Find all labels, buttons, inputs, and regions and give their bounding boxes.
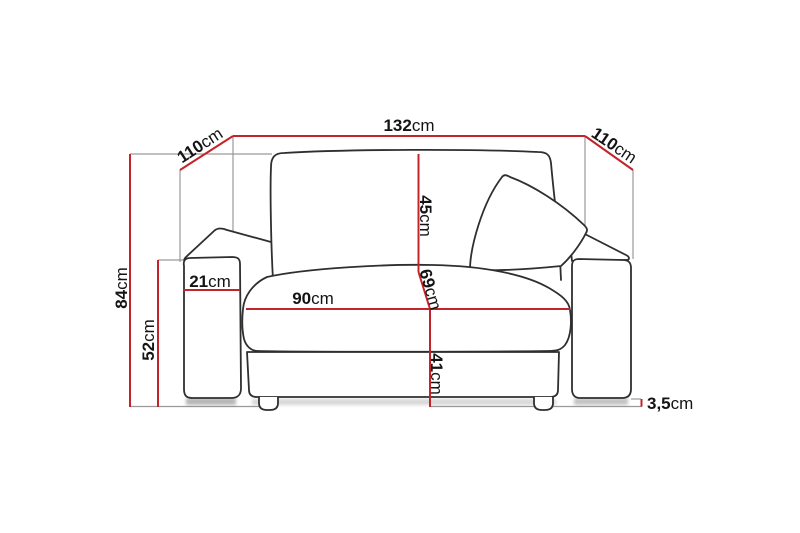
shadow-right-armrest [574, 398, 628, 405]
armrest-height-unit: cm [139, 319, 158, 342]
seat-width-value: 90 [292, 289, 311, 308]
armrest-height-value: 52 [139, 342, 158, 361]
armrest-width-value: 21 [189, 272, 208, 291]
sofa-base [247, 352, 559, 397]
total-width-label: 132cm [383, 116, 434, 135]
backrest-height-unit: cm [416, 214, 435, 237]
leg-height-label: 3,5cm [647, 394, 693, 413]
seat-width-unit: cm [311, 289, 334, 308]
seat-height-label: 41cm [427, 353, 446, 395]
armrest-height-label: 52cm [139, 319, 158, 361]
total-width-value: 132 [383, 116, 411, 135]
seat-height-value: 41 [427, 353, 446, 372]
total-height-unit: cm [112, 267, 131, 290]
seat-width-label: 90cm [292, 289, 334, 308]
leg-height-unit: cm [671, 394, 694, 413]
right-armrest-front [572, 259, 631, 398]
total-height-value: 84 [112, 289, 131, 308]
sofa-dimension-diagram: 132cm 110cm 110cm 84cm 52cm 21cm 45cm 69… [0, 0, 800, 533]
armrest-width-label: 21cm [189, 272, 231, 291]
diagram-canvas: 132cm 110cm 110cm 84cm 52cm 21cm 45cm 69… [0, 0, 800, 533]
armrest-width-unit: cm [208, 272, 231, 291]
sofa-leg-right [534, 397, 553, 410]
shadow-base [252, 399, 556, 405]
seat-height-unit: cm [427, 372, 446, 395]
leg-height-value: 3,5 [647, 394, 671, 413]
backrest-height-label: 45cm [416, 195, 435, 237]
sofa-leg-left [259, 397, 278, 410]
shadow-left-armrest [186, 398, 236, 405]
total-height-label: 84cm [112, 267, 131, 309]
backrest-height-value: 45 [416, 195, 435, 214]
total-width-unit: cm [412, 116, 435, 135]
